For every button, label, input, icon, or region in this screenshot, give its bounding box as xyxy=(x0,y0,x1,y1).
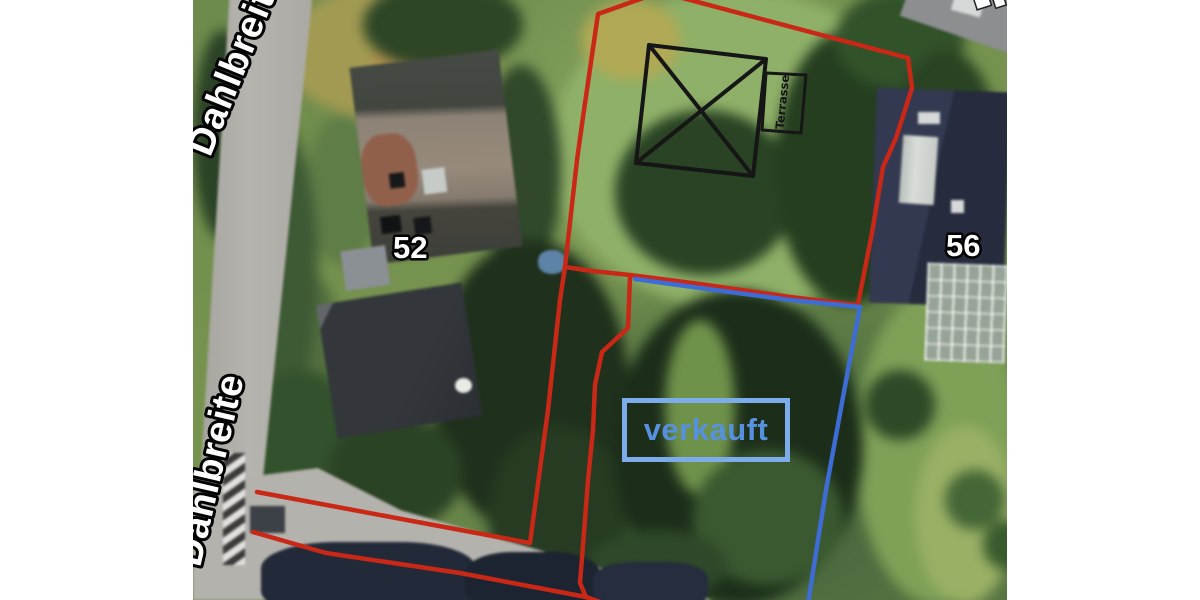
street-label-top: Dahlbreite xyxy=(193,0,292,161)
sold-badge: verkauft xyxy=(622,398,790,462)
house-number-56: 56 xyxy=(946,228,980,263)
building-diagonal xyxy=(636,59,766,163)
annotation-overlay: Dahlbreite Dahlbreite 52 56 xyxy=(193,0,1007,600)
red-divider-line xyxy=(565,267,857,305)
aerial-photo: Dahlbreite Dahlbreite 52 56 verkauft Ter… xyxy=(193,0,1007,600)
cutoff-street-label xyxy=(973,0,1006,10)
white-margin-right xyxy=(1007,0,1200,600)
red-access-strip-line xyxy=(253,532,586,597)
terrace-label: Terrasse xyxy=(772,74,792,130)
street-label-bottom: Dahlbreite xyxy=(193,370,253,570)
annotated-aerial-map: Dahlbreite Dahlbreite 52 56 verkauft Ter… xyxy=(0,0,1200,600)
house-number-52: 52 xyxy=(393,230,427,265)
terrace-annotation: Terrasse xyxy=(759,68,805,136)
sold-badge-label: verkauft xyxy=(644,412,769,448)
white-margin-left xyxy=(0,0,193,600)
